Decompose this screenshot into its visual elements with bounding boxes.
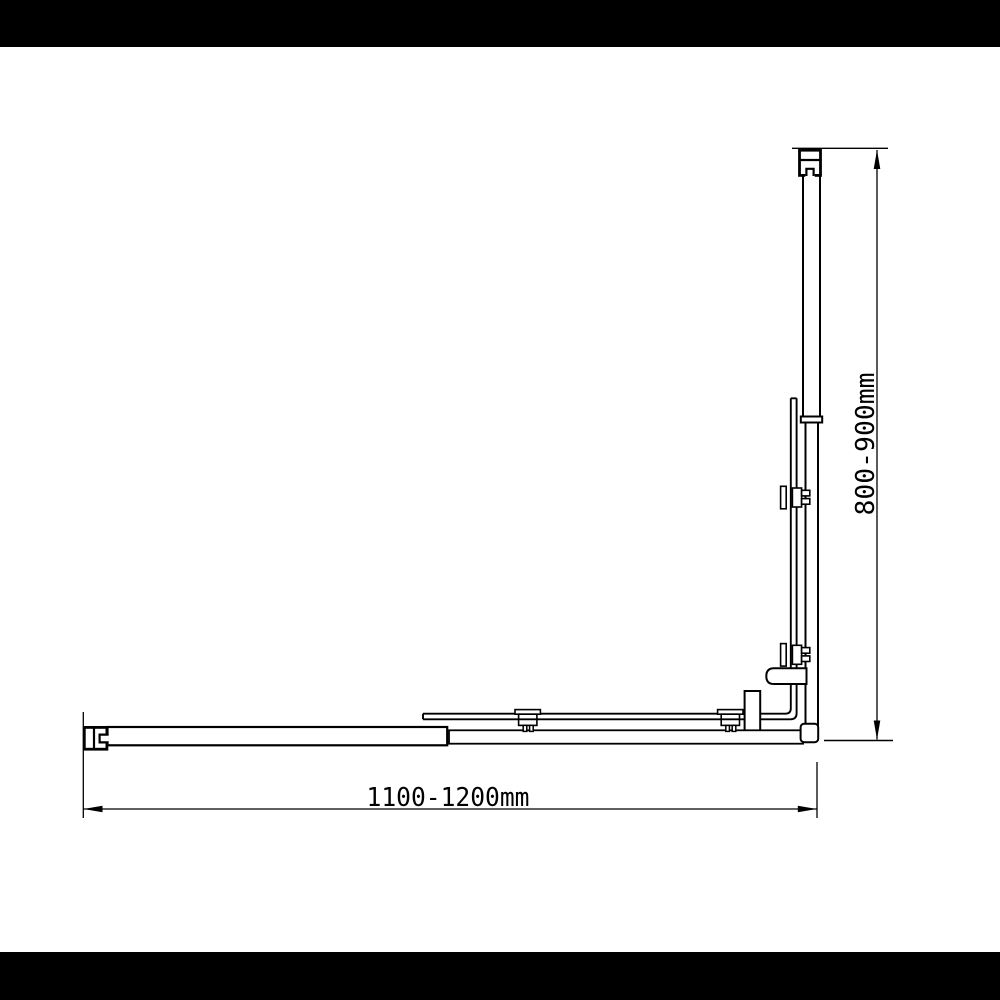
height-dim-label: 800-900mm: [851, 373, 881, 516]
guide-block: [745, 691, 761, 731]
glass-clip-plate: [781, 486, 787, 509]
door-clamp-leg: [530, 725, 534, 731]
support-arm-bracket: [766, 668, 806, 684]
top-wall-bracket: [799, 150, 821, 178]
shower-screen-technical-drawing: 800-900mm 1100-1200mm: [0, 0, 1000, 1000]
left-wall-bracket: [84, 727, 109, 749]
glass-clip-tab: [802, 499, 810, 505]
glass-clip-body: [792, 645, 801, 664]
door-clamp-leg: [523, 725, 527, 731]
glass-clip-tab: [802, 656, 810, 662]
fixed-panel-bar: [108, 727, 448, 745]
glass-clip-body: [792, 488, 801, 507]
glass-clip-tab: [802, 490, 810, 496]
corner-block: [801, 724, 819, 742]
glass-clip-tab: [802, 648, 810, 654]
drawing-canvas: [0, 47, 1000, 952]
wall-profile-outer: [803, 152, 820, 418]
door-clamp-leg: [732, 725, 736, 731]
bottom-rail: [449, 730, 803, 743]
screenshot-root: 800-900mm 1100-1200mm: [0, 0, 1000, 1000]
width-dim-label: 1100-1200mm: [367, 783, 530, 813]
glass-clip-plate: [781, 644, 787, 667]
door-clamp-leg: [726, 725, 730, 731]
